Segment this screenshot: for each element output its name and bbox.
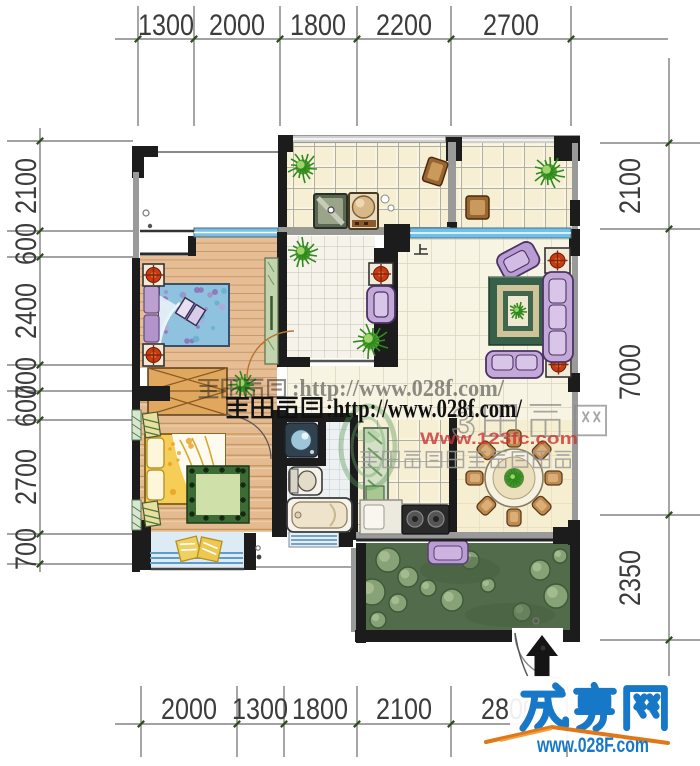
svg-text:2100: 2100 [10,158,43,214]
svg-text:2000: 2000 [161,693,217,726]
svg-text:2700: 2700 [483,9,539,42]
svg-text:2700: 2700 [10,449,43,505]
svg-text:2400: 2400 [10,283,43,339]
svg-text:1800: 1800 [292,693,348,726]
svg-text::http://www.028f.com/: :http://www.028f.com/ [326,394,523,423]
svg-text:2350: 2350 [614,550,647,606]
svg-text:700: 700 [10,528,43,570]
svg-text:Www.123fc.com: Www.123fc.com [420,429,578,448]
svg-text:600: 600 [10,223,43,265]
svg-text:1800: 1800 [290,9,346,42]
svg-text:600: 600 [10,385,43,427]
svg-text:2200: 2200 [376,9,432,42]
svg-text:2100: 2100 [614,158,647,214]
svg-text:7000: 7000 [614,344,647,400]
svg-text:www.028F.com: www.028F.com [536,734,649,757]
svg-text:1300: 1300 [138,9,194,42]
svg-text:2100: 2100 [376,693,432,726]
svg-text:1300: 1300 [232,693,288,726]
svg-text:2000: 2000 [209,9,265,42]
